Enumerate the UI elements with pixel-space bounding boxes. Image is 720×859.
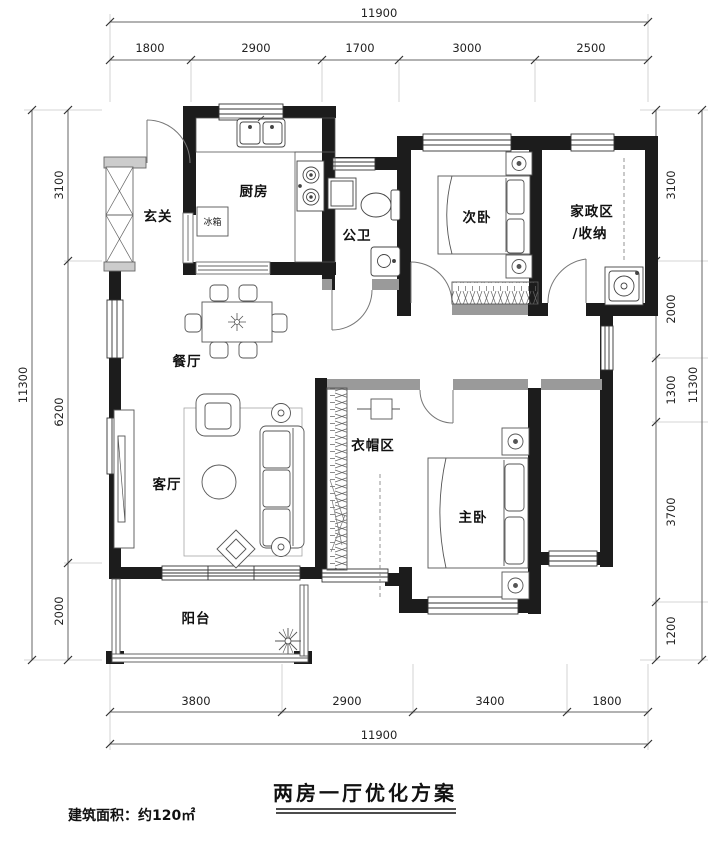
side-table [272,538,291,557]
floor-plan-page: 11900 1800 2900 1700 3000 2500 3800 2900… [0,0,720,859]
label-living: 客厅 [152,476,182,493]
armchair [196,394,240,436]
dim-top-total: 11900 [361,6,398,20]
dim-top-seg5: 2500 [576,41,605,55]
dim-bottom-seg4: 1800 [592,694,621,708]
title-block: 两房一厅优化方案 建筑面积：约120㎡ [68,781,457,824]
dim-right-seg3: 1300 [664,375,678,404]
ottoman [217,530,255,568]
cloak-stool [371,399,392,419]
kitchen-stove [297,161,324,211]
dining-furniture [185,285,287,358]
dim-bottom-seg2: 2900 [332,694,361,708]
living-furniture [114,394,304,568]
fridge: 冰箱 [197,207,228,236]
dim-top-seg4: 3000 [452,41,481,55]
bedroom2-door [411,262,452,303]
dim-right-seg2: 2000 [664,294,678,323]
label-bathroom: 公卫 [343,228,372,244]
dim-left-seg3: 2000 [52,596,66,625]
area-note: 建筑面积：约120㎡ [68,807,195,824]
nightstand [506,255,532,278]
dim-bottom-seg1: 3800 [181,694,210,708]
dim-left-total: 11300 [16,367,30,404]
dim-bottom-seg3: 3400 [475,694,504,708]
kitchen-south-slider [196,262,270,274]
label-entry: 玄关 [144,208,173,225]
label-laundry-2: /收纳 [573,225,608,242]
label-dining: 餐厅 [172,353,202,370]
plan-title: 两房一厅优化方案 [273,781,457,805]
cloak-rack [327,388,347,570]
bathroom-window [333,158,375,170]
label-master: 主卧 [459,509,488,526]
nightstand [506,152,532,175]
sofa [260,426,304,548]
dim-left-seg1: 3100 [52,170,66,199]
label-cloakroom: 衣帽区 [351,437,395,454]
dining-chair [210,342,228,358]
toilet [361,190,400,220]
dining-chair [185,314,201,332]
nightstand [502,572,529,599]
bath-sink [371,247,400,276]
floor-plan-drawing: 11900 1800 2900 1700 3000 2500 3800 2900… [0,0,720,859]
bedroom2-window [423,134,511,151]
coffee-table [202,465,236,499]
dim-top-seg2: 2900 [241,41,270,55]
dining-chair [239,342,257,358]
label-balcony: 阳台 [182,610,211,627]
dim-top-seg1: 1800 [135,41,164,55]
wardrobe-bedroom2 [452,282,538,304]
balcony-plant [275,628,301,654]
cloakroom-south-window [322,569,388,582]
side-table [272,404,291,423]
kitchen-window [219,104,283,120]
bedroom2-furniture [438,152,538,304]
dim-right-total: 11300 [686,367,700,404]
label-laundry-1: 家政区 [570,203,614,220]
laundry-door [548,259,586,303]
tv-console [114,410,134,548]
laundry-area [605,158,643,305]
entry-cabinet [104,157,146,271]
kitchen-west-slider [183,213,193,263]
hall-window [601,326,613,370]
fridge-label: 冰箱 [203,216,221,228]
dim-right-seg1: 3100 [664,170,678,199]
washing-machine [605,267,643,305]
laundry-window [571,134,614,151]
label-bedroom2: 次卧 [463,209,492,226]
dim-left-seg2: 6200 [52,397,66,426]
master-window [428,597,518,614]
dining-chair [271,314,287,332]
bath-cabinet [328,178,356,209]
label-kitchen: 厨房 [240,183,269,200]
bathroom-fixtures [328,178,400,276]
master-door [420,390,453,423]
dining-window [107,300,123,358]
bathroom-door [332,290,372,330]
dining-chair [210,285,228,301]
dining-chair [239,285,257,301]
cloakroom-furniture [327,388,400,598]
dim-bottom-total: 11900 [361,728,398,742]
niche-window [549,551,597,566]
living-balcony-slider [162,566,300,580]
nightstand [502,428,529,455]
dim-top-seg3: 1700 [345,41,374,55]
kitchen-sink [237,116,285,147]
dim-right-seg5: 1200 [664,616,678,645]
dim-right-seg4: 3700 [664,497,678,526]
